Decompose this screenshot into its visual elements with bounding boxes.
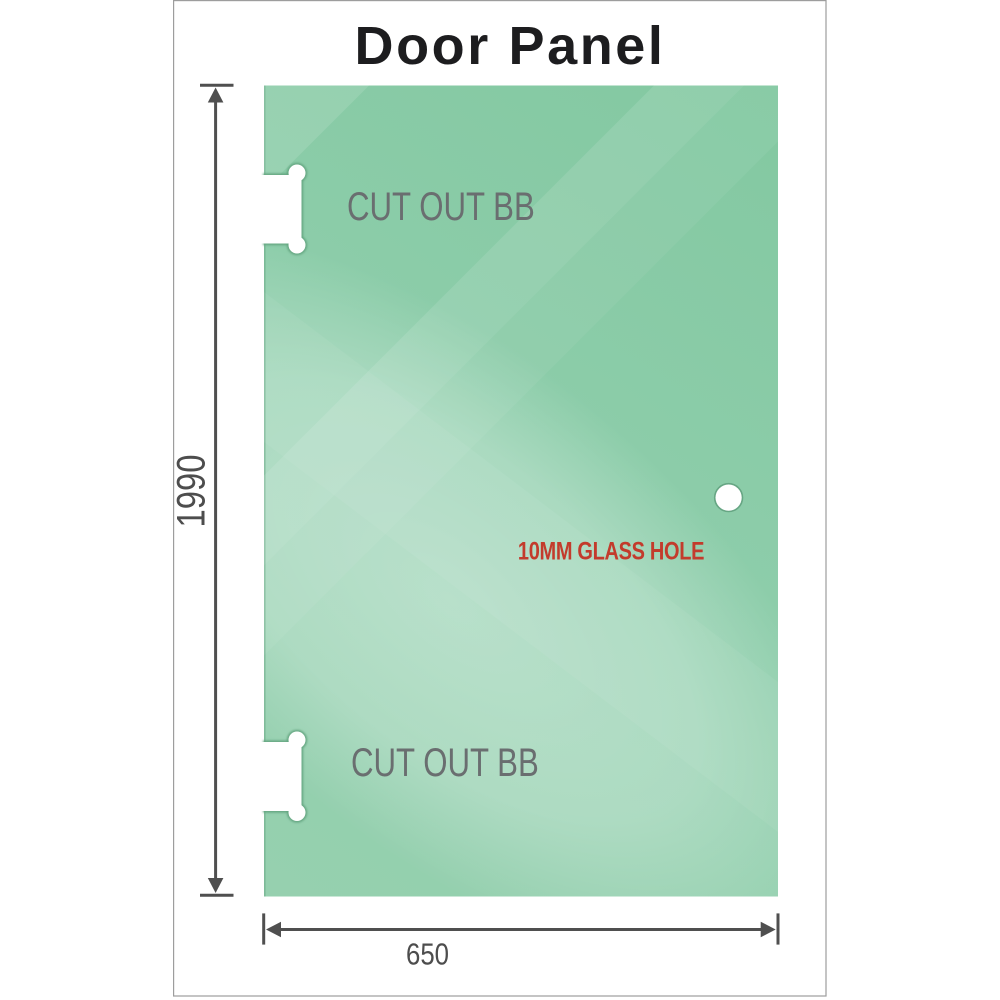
svg-text:650: 650 xyxy=(406,937,449,972)
svg-text:CUT OUT BB: CUT OUT BB xyxy=(351,740,539,785)
svg-text:10MM GLASS HOLE: 10MM GLASS HOLE xyxy=(518,537,704,565)
svg-text:CUT OUT BB: CUT OUT BB xyxy=(347,184,535,229)
svg-text:Door Panel: Door Panel xyxy=(354,16,665,76)
svg-text:1990: 1990 xyxy=(168,455,213,528)
